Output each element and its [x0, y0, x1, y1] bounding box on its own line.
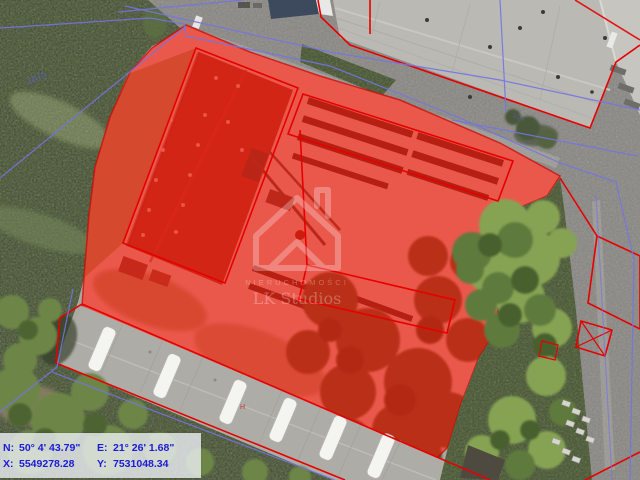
coord-e-label: E: — [97, 440, 111, 456]
map-viewport[interactable]: 1879 31.5 H NIERUCHOMOŚCI LK Studios — [0, 0, 640, 480]
coord-n-value: 50° 4' 43.79" — [19, 440, 95, 456]
coordinate-panel: N: 50° 4' 43.79" E: 21° 26' 1.68" X: 554… — [0, 433, 201, 478]
building-mark: H — [240, 404, 245, 411]
coord-x-label: X: — [3, 456, 17, 472]
coord-y-value: 7531048.34 — [113, 456, 195, 472]
coord-y-label: Y: — [97, 456, 111, 472]
coord-n-label: N: — [3, 440, 17, 456]
watermark-line1: NIERUCHOMOŚCI — [245, 278, 349, 287]
watermark-line2: LK Studios — [253, 289, 342, 308]
coord-e-value: 21° 26' 1.68" — [113, 440, 195, 456]
map-canvas[interactable]: 1879 31.5 H NIERUCHOMOŚCI LK Studios — [0, 0, 640, 480]
coord-x-value: 5549278.28 — [19, 456, 95, 472]
